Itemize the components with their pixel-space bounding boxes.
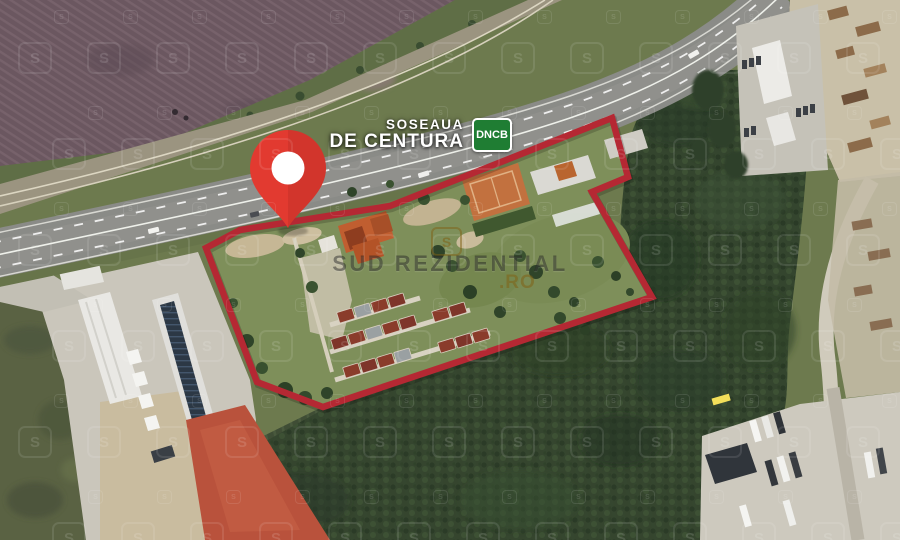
satellite-image (0, 0, 900, 540)
satellite-map: SSSSSSSSSSSSSSSSSSSSSSSSSSSSSSSSSSSSSSSS… (0, 0, 900, 540)
